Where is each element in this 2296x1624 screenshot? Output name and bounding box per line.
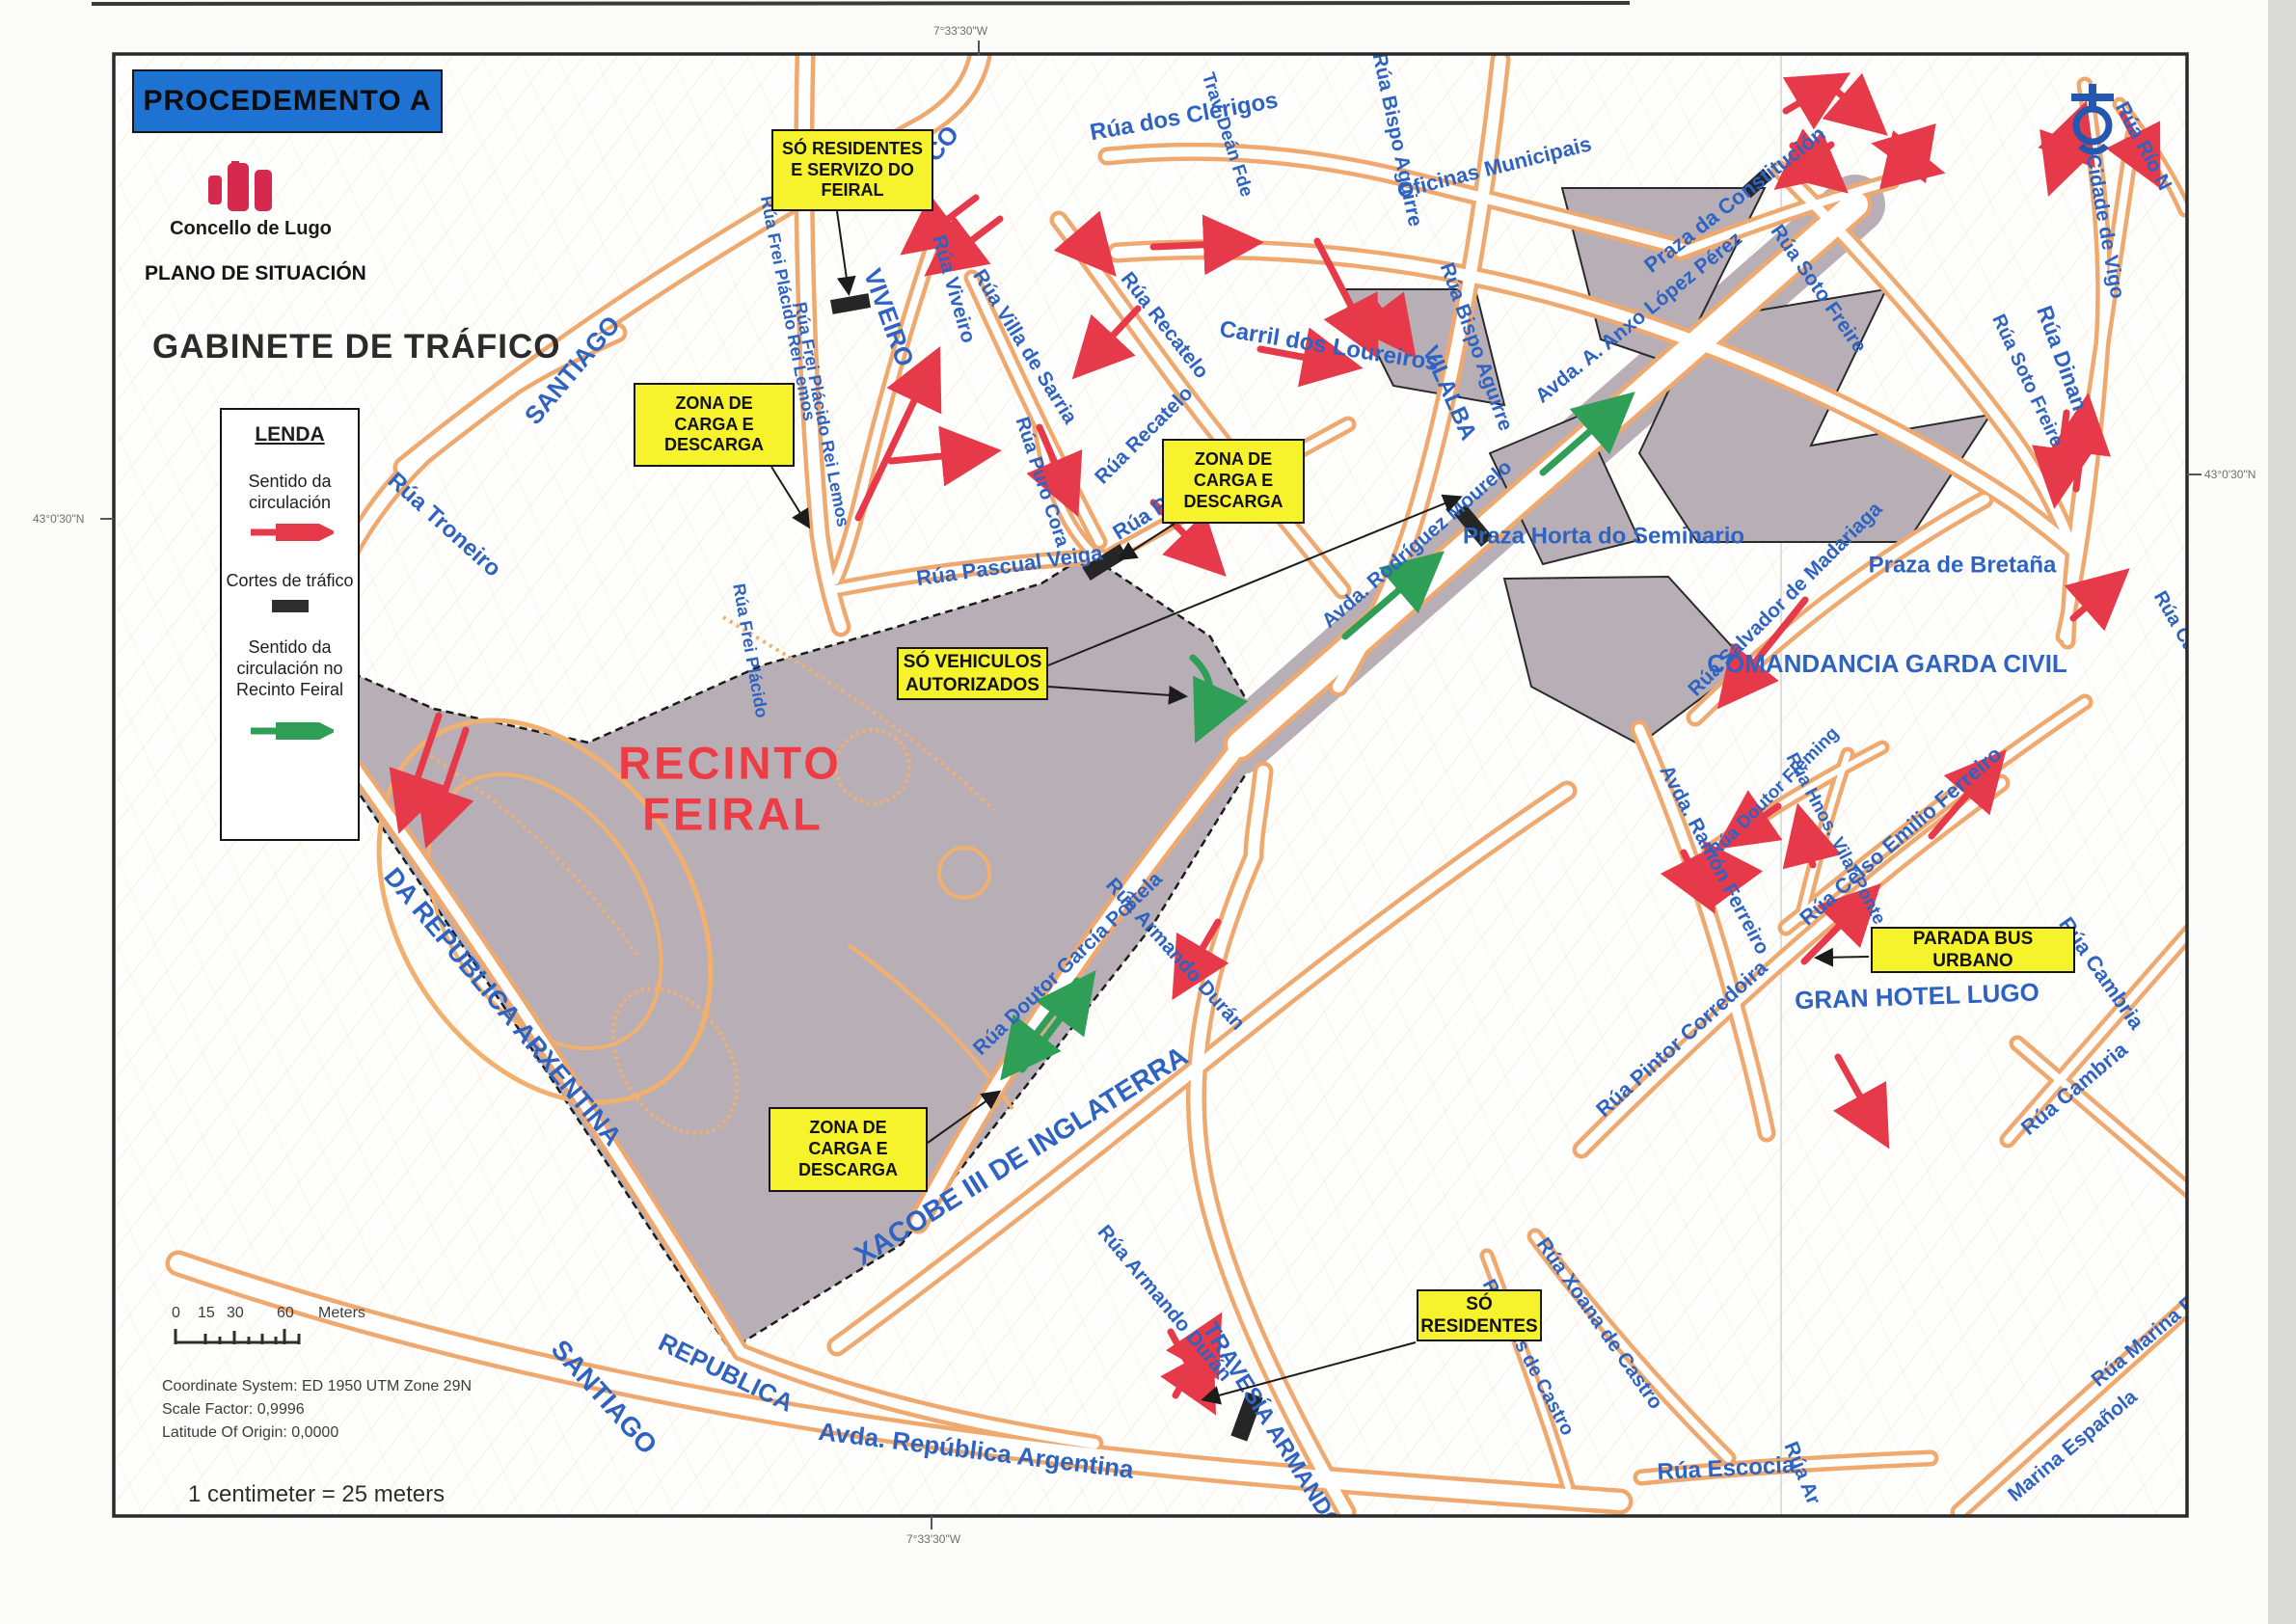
scanned-traffic-plan-page: SANTIAGORúa TroneiroCORúa dos ClérigosTr… bbox=[0, 0, 2296, 1624]
callout-zona-de-carga-e-descarga: ZONA DECARGA EDESCARGA bbox=[634, 383, 795, 467]
callout-line: SÓ bbox=[1466, 1293, 1492, 1315]
legend-item-cuts: Cortes de tráfico bbox=[222, 571, 358, 592]
red-direction-arrow bbox=[1153, 243, 1244, 247]
coord-right: 43°0'30"N bbox=[2204, 468, 2255, 481]
callout-zona-de-carga-e-descarga: ZONA DECARGA EDESCARGA bbox=[1162, 439, 1305, 524]
callout-zona-de-carga-e-descarga: ZONA DECARGA EDESCARGA bbox=[769, 1107, 928, 1192]
recinto-feiral-label-line1: RECINTO bbox=[618, 737, 842, 788]
callout-line: SÓ RESIDENTES bbox=[782, 139, 923, 160]
callout-line: CARGA E bbox=[674, 415, 753, 436]
callout-parada-bus-urbano: PARADA BUS URBANO bbox=[1871, 927, 2075, 973]
callout-line: PARADA BUS URBANO bbox=[1873, 928, 2073, 972]
callout-line: DESCARGA bbox=[1183, 492, 1283, 513]
scale-ratio: 1 centimeter = 25 meters bbox=[188, 1481, 445, 1507]
callout-line: ZONA DE bbox=[809, 1118, 886, 1139]
street-label: Praza de Bretaña bbox=[1869, 552, 2057, 578]
callout-line: ZONA DE bbox=[675, 393, 752, 415]
traffic-cut-icon bbox=[272, 600, 309, 612]
callout-line: E SERVIZO DO bbox=[791, 160, 914, 181]
callout-line: DESCARGA bbox=[664, 435, 764, 456]
scale-number-0: 0 bbox=[172, 1305, 180, 1321]
scale-number-60: 60 bbox=[277, 1305, 294, 1321]
legend-title: LENDA bbox=[222, 423, 358, 447]
doc-type: PLANO DE SITUACIÓN bbox=[145, 262, 366, 285]
scale-factor-note: Scale Factor: 0,9996 bbox=[162, 1401, 305, 1418]
coord-bottom: 7°33'30"W bbox=[906, 1532, 961, 1546]
legend-box: LENDA Sentido da circulación Cortes de t… bbox=[220, 408, 360, 841]
org-name: Concello de Lugo bbox=[135, 218, 366, 240]
legend-item-recinto: Sentido da circulación no Recinto Feiral bbox=[222, 637, 358, 701]
green-arrow-icon bbox=[222, 722, 358, 744]
scale-number-30: 30 bbox=[227, 1305, 244, 1321]
scale-unit: Meters bbox=[318, 1305, 365, 1321]
page-title: GABINETE DE TRÁFICO bbox=[152, 328, 560, 366]
latitude-origin-note: Latitude Of Origin: 0,0000 bbox=[162, 1424, 338, 1441]
street-label: Praza Horta do Seminario bbox=[1463, 523, 1744, 549]
callout-line: RESIDENTES bbox=[1420, 1315, 1537, 1338]
scan-band bbox=[2268, 0, 2296, 1624]
callout-s-vehiculos-autorizados: SÓ VEHICULOSAUTORIZADOS bbox=[897, 647, 1048, 700]
callout-s-residentes-e-servizo-do-feiral: SÓ RESIDENTESE SERVIZO DOFEIRAL bbox=[771, 129, 933, 211]
callout-line: FEIRAL bbox=[822, 180, 884, 202]
callout-line: CARGA E bbox=[1194, 471, 1273, 492]
callout-line: SÓ VEHICULOS bbox=[904, 651, 1042, 673]
callout-leader bbox=[1818, 957, 1869, 958]
street-label: COMANDANCIA GARDA CIVIL bbox=[1707, 649, 2067, 678]
scale-number-15: 15 bbox=[198, 1305, 215, 1321]
coordinate-system-note: Coordinate System: ED 1950 UTM Zone 29N bbox=[162, 1378, 472, 1394]
procedure-banner: PROCEDEMENTO A bbox=[132, 69, 443, 133]
callout-line: DESCARGA bbox=[798, 1160, 898, 1181]
coord-left: 43°0'30"N bbox=[33, 512, 84, 526]
concello-logo bbox=[205, 161, 283, 215]
callout-line: CARGA E bbox=[808, 1139, 887, 1160]
red-arrow-icon bbox=[222, 524, 358, 546]
page-edge-line bbox=[92, 3, 1630, 4]
legend-item-circulation: Sentido da circulación bbox=[222, 472, 358, 514]
recinto-feiral-label-line2: FEIRAL bbox=[642, 788, 824, 839]
coord-top: 7°33'30"W bbox=[933, 24, 988, 38]
callout-line: AUTORIZADOS bbox=[905, 674, 1040, 696]
callout-line: ZONA DE bbox=[1195, 449, 1272, 471]
callout-s-residentes: SÓRESIDENTES bbox=[1417, 1289, 1542, 1341]
